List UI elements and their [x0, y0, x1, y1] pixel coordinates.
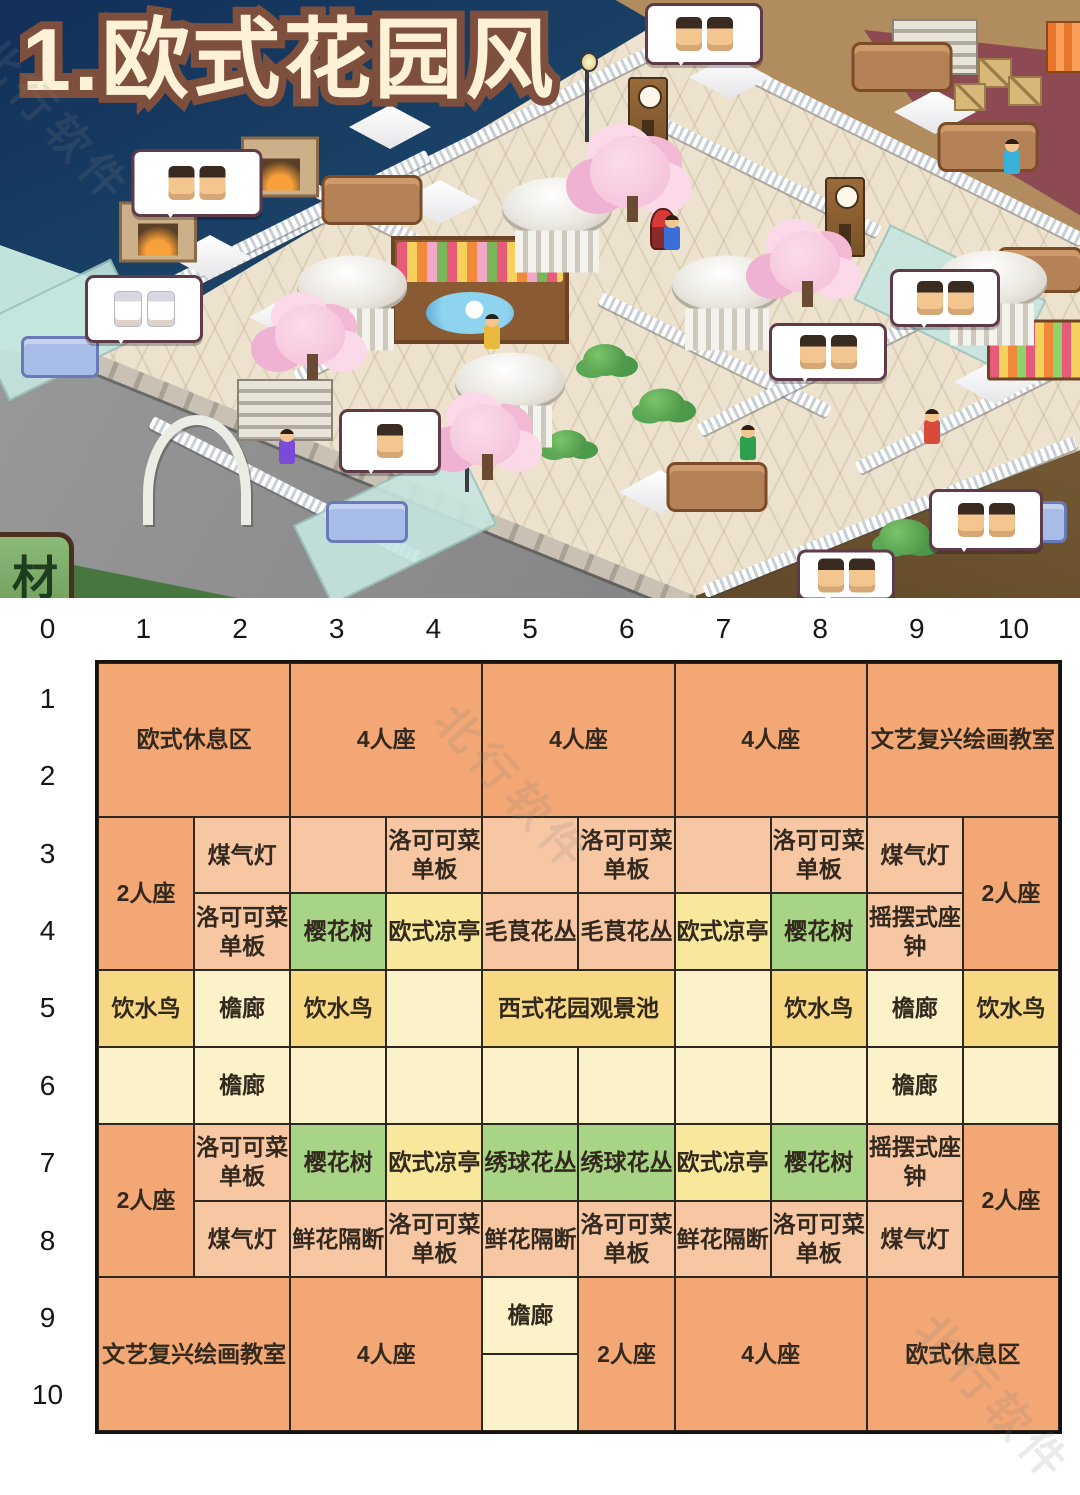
cell-label: 4人座	[741, 725, 800, 754]
crate[interactable]	[954, 83, 986, 111]
title-text: 1.欧式花园风	[22, 12, 556, 109]
blue-sofa[interactable]	[326, 501, 408, 543]
column-label-5: 5	[482, 598, 579, 660]
grid-cell-r9c7: 4人座	[675, 1277, 867, 1431]
grid-cell-r8c4: 洛可可菜单板	[386, 1201, 482, 1278]
grid-cell-r3c10: 2人座	[963, 817, 1059, 971]
grid-cell-r5c5: 西式花园观景池	[482, 970, 674, 1047]
grid-cell-r5c10: 饮水鸟	[963, 970, 1059, 1047]
character[interactable]	[740, 436, 756, 460]
cell-label: 樱花树	[784, 1148, 853, 1177]
gazebo[interactable]	[672, 256, 782, 351]
grid-cell-r9c1: 文艺复兴绘画教室	[98, 1277, 290, 1431]
grid-cell-r4c2: 洛可可菜单板	[194, 893, 290, 970]
cell-label: 鲜花隔断	[677, 1225, 769, 1254]
column-label-8: 8	[772, 598, 869, 660]
cell-label: 檐廊	[219, 994, 265, 1023]
grid-cell-r6c9: 檐廊	[867, 1047, 963, 1124]
cell-label: 樱花树	[304, 1148, 373, 1177]
grid-cell-r1c7: 4人座	[675, 663, 867, 817]
cell-label: 洛可可菜单板	[773, 1210, 865, 1268]
character[interactable]	[924, 420, 940, 444]
crate[interactable]	[1008, 76, 1042, 106]
cell-label: 饮水鸟	[304, 994, 373, 1023]
character[interactable]	[484, 325, 500, 349]
cherry[interactable]	[590, 136, 670, 208]
grid-cell-r5c9: 檐廊	[867, 970, 963, 1047]
blue-sofa[interactable]	[21, 336, 99, 378]
grid-cell-r6c4	[386, 1047, 482, 1124]
bubble[interactable]	[85, 275, 203, 343]
cell-label: 檐廊	[892, 1071, 938, 1100]
cell-label: 2人座	[597, 1340, 656, 1369]
cell-label: 摇摆式座钟	[869, 1133, 961, 1191]
awning[interactable]	[1046, 21, 1080, 73]
character-face	[114, 291, 142, 327]
row-label-6: 6	[0, 1047, 95, 1124]
cell-label: 2人座	[117, 879, 176, 908]
grid-cell-r6c2: 檐廊	[194, 1047, 290, 1124]
grid-cell-r5c4	[386, 970, 482, 1047]
character-face	[849, 558, 875, 592]
column-label-3: 3	[288, 598, 385, 660]
cell-label: 毛茛花丛	[581, 917, 673, 946]
grid-cell-r3c2: 煤气灯	[194, 817, 290, 894]
cell-label: 煤气灯	[880, 841, 949, 870]
lamp[interactable]	[579, 52, 595, 142]
cell-label: 欧式凉亭	[677, 1148, 769, 1177]
character-face	[169, 166, 195, 200]
grid-cell-r5c8: 饮水鸟	[771, 970, 867, 1047]
grid-cell-r6c1	[98, 1047, 194, 1124]
cell-label: 4人座	[357, 1340, 416, 1369]
cell-label: 欧式凉亭	[388, 1148, 480, 1177]
grid-cell-r3c5	[482, 817, 578, 894]
cell-label: 欧式休息区	[905, 1340, 1020, 1369]
grid-cell-r4c7: 欧式凉亭	[675, 893, 771, 970]
sofa[interactable]	[852, 42, 953, 92]
grid-cell-r3c4: 洛可可菜单板	[386, 817, 482, 894]
grid-cell-r7c8: 樱花树	[771, 1124, 867, 1201]
bush[interactable]	[639, 389, 685, 422]
grid-cell-r8c8: 洛可可菜单板	[771, 1201, 867, 1278]
cherry[interactable]	[275, 304, 345, 366]
grid-cell-r4c5: 毛茛花丛	[482, 893, 578, 970]
grid-cell-r1c3: 4人座	[290, 663, 482, 817]
cell-label: 煤气灯	[208, 1225, 277, 1254]
cell-label: 2人座	[117, 1186, 176, 1215]
bush[interactable]	[583, 344, 627, 376]
grid-cell-r9c6: 2人座	[578, 1277, 674, 1431]
grid-cell-r9c9: 欧式休息区	[867, 1277, 1059, 1431]
material-button-label: 材	[12, 542, 58, 598]
grid-cell-r8c7: 鲜花隔断	[675, 1201, 771, 1278]
cell-label: 洛可可菜单板	[196, 1133, 288, 1191]
cell-label: 樱花树	[784, 917, 853, 946]
cell-label: 檐廊	[892, 994, 938, 1023]
grid-cell-r1c1: 欧式休息区	[98, 663, 290, 817]
grid-cell-r5c3: 饮水鸟	[290, 970, 386, 1047]
cell-label: 洛可可菜单板	[196, 903, 288, 961]
character-face	[818, 558, 844, 592]
grid-cell-r9c5: 檐廊	[482, 1277, 578, 1354]
column-label-10: 10	[965, 598, 1062, 660]
sofa[interactable]	[322, 175, 423, 225]
grid-cell-r3c1: 2人座	[98, 817, 194, 971]
bubble[interactable]	[890, 269, 1000, 327]
bubble[interactable]	[339, 409, 441, 473]
cell-label: 4人座	[549, 725, 608, 754]
grid-cell-r4c6: 毛茛花丛	[578, 893, 674, 970]
layout-table-section: 012345678910 12345678910 欧式休息区4人座4人座4人座文…	[0, 598, 1080, 1440]
grid-cell-r6c6	[578, 1047, 674, 1124]
cell-label: 欧式凉亭	[388, 917, 480, 946]
bubble[interactable]	[645, 3, 763, 65]
grid-cell-r3c6: 洛可可菜单板	[578, 817, 674, 894]
grid-cell-r6c10	[963, 1047, 1059, 1124]
cherry[interactable]	[450, 404, 520, 466]
column-label-6: 6	[578, 598, 675, 660]
material-button[interactable]: 材	[0, 532, 74, 598]
character[interactable]	[664, 226, 680, 250]
grid-cell-r6c5	[482, 1047, 578, 1124]
cell-label: 饮水鸟	[976, 994, 1045, 1023]
bubble[interactable]	[132, 149, 263, 217]
grid-cell-r9c3: 4人座	[290, 1277, 482, 1431]
cell-label: 洛可可菜单板	[580, 826, 672, 884]
cell-label: 洛可可菜单板	[388, 1210, 480, 1268]
layout-grid: 欧式休息区4人座4人座4人座文艺复兴绘画教室2人座煤气灯洛可可菜单板洛可可菜单板…	[95, 660, 1062, 1434]
character[interactable]	[279, 440, 295, 464]
cell-label: 洛可可菜单板	[388, 826, 480, 884]
cell-label: 文艺复兴绘画教室	[871, 725, 1055, 754]
row-label-10: 10	[0, 1357, 95, 1434]
character-face	[958, 503, 984, 537]
grid-cell-r6c3	[290, 1047, 386, 1124]
grid-cell-r8c6: 洛可可菜单板	[578, 1201, 674, 1278]
cell-label: 饮水鸟	[112, 994, 181, 1023]
grid-cell-r4c9: 摇摆式座钟	[867, 893, 963, 970]
grid-cell-r3c3	[290, 817, 386, 894]
cell-label: 2人座	[982, 879, 1041, 908]
grid-cell-r8c3: 鲜花隔断	[290, 1201, 386, 1278]
row-label-7: 7	[0, 1124, 95, 1201]
page-title: 1.欧式花园风 1.欧式花园风	[22, 12, 556, 109]
grid-cell-r7c4: 欧式凉亭	[386, 1124, 482, 1201]
character-face	[831, 335, 857, 369]
grid-cell-r5c2: 檐廊	[194, 970, 290, 1047]
cell-label: 摇摆式座钟	[869, 903, 961, 961]
column-label-1: 1	[95, 598, 192, 660]
column-label-0: 0	[0, 598, 95, 660]
grid-cell-r4c8: 樱花树	[771, 893, 867, 970]
character-face	[800, 335, 826, 369]
grid-cell-r6c8	[771, 1047, 867, 1124]
column-label-7: 7	[675, 598, 772, 660]
cell-label: 绣球花丛	[484, 1148, 576, 1177]
column-label-4: 4	[385, 598, 482, 660]
grid-cell-r10c5	[482, 1354, 578, 1431]
cell-label: 鲜花隔断	[292, 1225, 384, 1254]
character-face	[707, 17, 733, 51]
grid-cell-r8c9: 煤气灯	[867, 1201, 963, 1278]
cell-label: 欧式凉亭	[677, 917, 769, 946]
bubble[interactable]	[929, 489, 1043, 551]
character-face	[948, 281, 974, 315]
grid-cell-r7c6: 绣球花丛	[578, 1124, 674, 1201]
cell-label: 樱花树	[304, 917, 373, 946]
cell-label: 绣球花丛	[581, 1148, 673, 1177]
character-face	[377, 424, 403, 458]
grid-cell-r7c5: 绣球花丛	[482, 1124, 578, 1201]
sofa[interactable]	[938, 122, 1039, 172]
grid-cell-r8c2: 煤气灯	[194, 1201, 290, 1278]
grid-cell-r3c8: 洛可可菜单板	[771, 817, 867, 894]
grid-cell-r4c4: 欧式凉亭	[386, 893, 482, 970]
row-label-9: 9	[0, 1279, 95, 1356]
bubble[interactable]	[769, 323, 887, 381]
cell-label: 煤气灯	[208, 841, 277, 870]
row-label-5: 5	[0, 970, 95, 1047]
row-label-1: 1	[0, 660, 95, 737]
grid-cell-r7c10: 2人座	[963, 1124, 1059, 1278]
character[interactable]	[1004, 150, 1020, 174]
row-label-8: 8	[0, 1202, 95, 1279]
grid-cell-r1c5: 4人座	[482, 663, 674, 817]
cell-label: 文艺复兴绘画教室	[102, 1340, 286, 1369]
cell-label: 饮水鸟	[784, 994, 853, 1023]
grid-cell-r7c1: 2人座	[98, 1124, 194, 1278]
cell-label: 4人座	[741, 1340, 800, 1369]
cell-label: 檐廊	[507, 1301, 553, 1330]
column-label-9: 9	[869, 598, 966, 660]
sofa[interactable]	[667, 462, 768, 512]
cell-label: 西式花园观景池	[498, 994, 659, 1023]
column-header: 012345678910	[0, 598, 1062, 660]
character-face	[917, 281, 943, 315]
column-label-2: 2	[192, 598, 289, 660]
row-label-3: 3	[0, 815, 95, 892]
grid-cell-r8c5: 鲜花隔断	[482, 1201, 578, 1278]
cell-label: 2人座	[982, 1186, 1041, 1215]
grid-cell-r7c9: 摇摆式座钟	[867, 1124, 963, 1201]
grid-cell-r3c7	[675, 817, 771, 894]
grid-cell-r7c2: 洛可可菜单板	[194, 1124, 290, 1201]
grid-cell-r4c3: 樱花树	[290, 893, 386, 970]
grid-cell-r5c1: 饮水鸟	[98, 970, 194, 1047]
gazebo[interactable]	[502, 178, 612, 273]
row-label-2: 2	[0, 737, 95, 814]
cherry[interactable]	[770, 231, 840, 293]
grid-cell-r7c3: 樱花树	[290, 1124, 386, 1201]
character-face	[989, 503, 1015, 537]
character-face	[200, 166, 226, 200]
row-label-4: 4	[0, 892, 95, 969]
cell-label: 4人座	[357, 725, 416, 754]
cell-label: 煤气灯	[880, 1225, 949, 1254]
row-header: 12345678910	[0, 660, 95, 1434]
grid-cell-r1c9: 文艺复兴绘画教室	[867, 663, 1059, 817]
cell-label: 檐廊	[219, 1071, 265, 1100]
grid-cell-r3c9: 煤气灯	[867, 817, 963, 894]
bubble[interactable]	[797, 550, 895, 599]
character-face	[147, 291, 175, 327]
cell-label: 鲜花隔断	[484, 1225, 576, 1254]
cell-label: 毛茛花丛	[484, 917, 576, 946]
cell-label: 洛可可菜单板	[773, 826, 865, 884]
grid-cell-r7c7: 欧式凉亭	[675, 1124, 771, 1201]
game-screenshot: 1.欧式花园风 1.欧式花园风 材 北行软件	[0, 0, 1080, 598]
grid-cell-r6c7	[675, 1047, 771, 1124]
grid-cell-r5c7	[675, 970, 771, 1047]
cell-label: 洛可可菜单板	[580, 1210, 672, 1268]
character-face	[676, 17, 702, 51]
cell-label: 欧式休息区	[137, 725, 252, 754]
